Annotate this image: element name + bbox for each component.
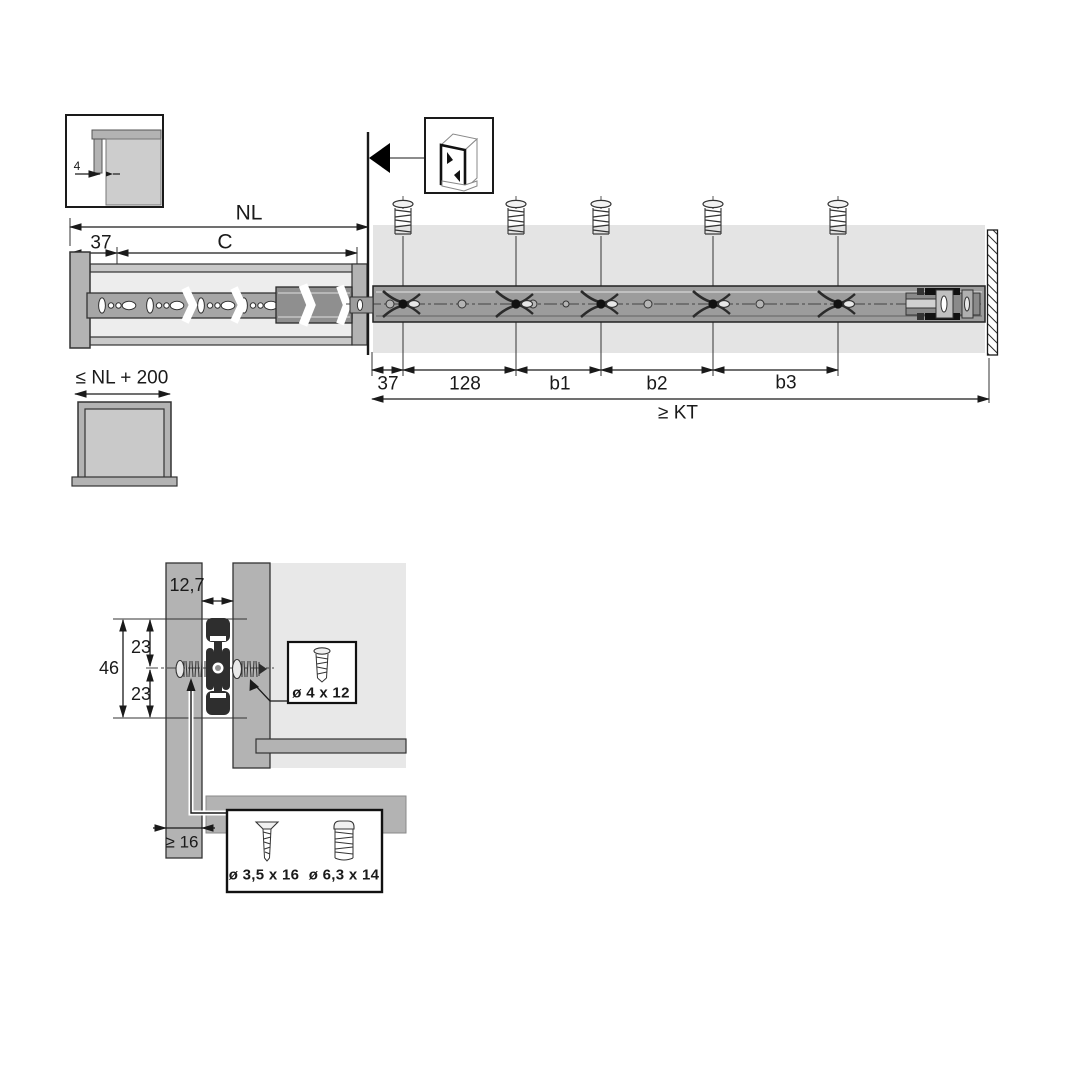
dim-hole-spacing — [372, 352, 838, 376]
dim-label-b2: b2 — [646, 375, 667, 394]
inset-gap-label: 4 — [74, 160, 81, 172]
dim-label-37: 37 — [377, 375, 398, 394]
cabinet-front-view — [72, 394, 177, 486]
cabinet-icon — [441, 134, 477, 191]
rear-lock-mechanism — [906, 288, 980, 320]
dim-label-kt: ≥ KT — [658, 404, 698, 423]
section-view — [113, 563, 406, 892]
cabinet-rail — [346, 286, 985, 322]
rear-wall-hatch-icon — [988, 230, 998, 355]
dim-label-23-bottom: 23 — [131, 685, 151, 703]
dim-label-46: 46 — [99, 659, 119, 677]
dim-label-128: 128 — [449, 375, 481, 394]
dim-label-23-top: 23 — [131, 638, 151, 656]
cabinet-icon-box — [425, 118, 493, 193]
drawer-side-view — [70, 252, 367, 348]
runner-cross-section — [206, 618, 230, 715]
dim-label-c: C — [217, 232, 232, 253]
screw-label-35x16: ø 3,5 x 16 — [229, 868, 300, 883]
dim-label-nl: NL — [236, 203, 263, 224]
front-direction-arrow-icon — [369, 143, 425, 173]
dim-label-min16: ≥ 16 — [166, 834, 199, 851]
dim-label-b3: b3 — [775, 374, 796, 393]
dim-label-127: 12,7 — [169, 576, 204, 594]
screw-label-63x14: ø 6,3 x 14 — [309, 868, 380, 883]
dim-label-nl200: ≤ NL + 200 — [76, 369, 169, 388]
dim-label-37-front: 37 — [90, 234, 111, 253]
technical-drawing: 4 NL 37 C 37 128 b1 b2 b3 ≥ KT ≤ NL + 20… — [0, 0, 1080, 1080]
dim-label-b1: b1 — [549, 375, 570, 394]
drawing-graphics — [0, 0, 1080, 1080]
screw-label-4x12: ø 4 x 12 — [292, 686, 349, 701]
